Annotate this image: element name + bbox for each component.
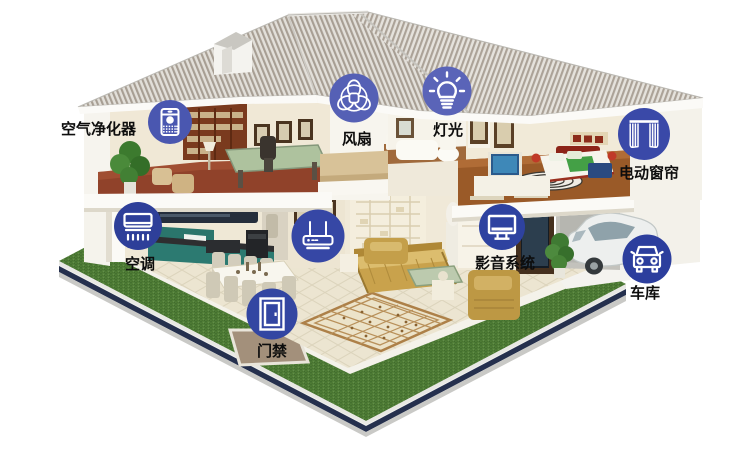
svg-text:风扇: 风扇 xyxy=(342,130,372,148)
svg-text:影音系统: 影音系统 xyxy=(475,254,535,272)
svg-text:车库: 车库 xyxy=(630,284,660,302)
svg-text:门禁: 门禁 xyxy=(257,342,287,360)
svg-text:电动窗帘: 电动窗帘 xyxy=(619,164,679,182)
svg-text:空气净化器: 空气净化器 xyxy=(61,120,137,138)
svg-text:空调: 空调 xyxy=(125,255,155,273)
svg-text:灯光: 灯光 xyxy=(433,121,463,139)
